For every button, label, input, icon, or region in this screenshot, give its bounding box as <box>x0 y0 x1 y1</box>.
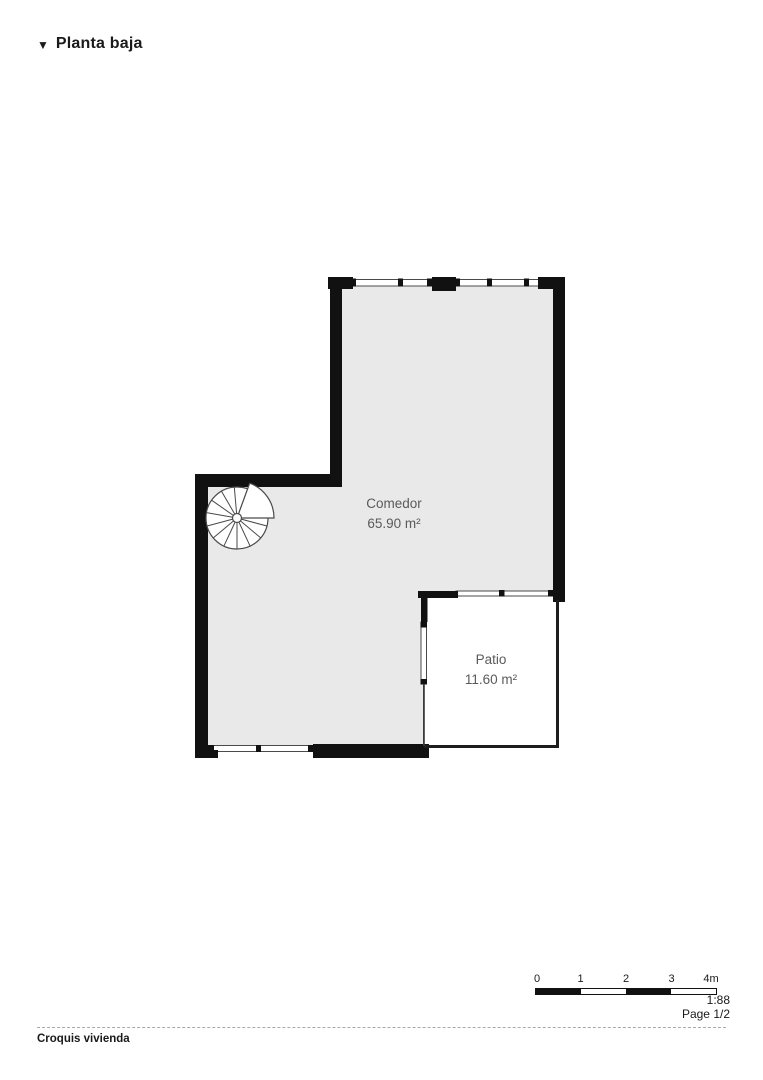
footer-divider <box>37 1027 726 1028</box>
page: ▼ Planta baja <box>0 0 763 1080</box>
scale-segment <box>536 989 581 994</box>
footer-label: Croquis vivienda <box>37 1033 130 1045</box>
room-label-comedor: Comedor 65.90 m² <box>366 494 422 534</box>
scale-tick: 0 <box>534 973 540 985</box>
scale-bar: 0 1 2 3 4m <box>535 973 717 995</box>
scale-tick: 4m <box>703 973 718 985</box>
scale-tick: 3 <box>668 973 674 985</box>
room-label-patio: Patio 11.60 m² <box>465 650 517 690</box>
page-indicator: Page 1/2 <box>682 1008 730 1022</box>
room-area: 65.90 m² <box>366 514 422 534</box>
scale-tick: 2 <box>623 973 629 985</box>
floor-plan <box>0 0 763 1080</box>
scale-segment <box>581 989 626 994</box>
scale-tick: 1 <box>577 973 583 985</box>
scale-info: 1:88 Page 1/2 <box>682 994 730 1021</box>
room-area: 11.60 m² <box>465 670 517 690</box>
scale-ratio: 1:88 <box>682 994 730 1008</box>
scale-tick-labels: 0 1 2 3 4m <box>535 973 717 986</box>
room-name: Comedor <box>366 494 422 514</box>
scale-segment <box>626 989 671 994</box>
room-name: Patio <box>465 650 517 670</box>
